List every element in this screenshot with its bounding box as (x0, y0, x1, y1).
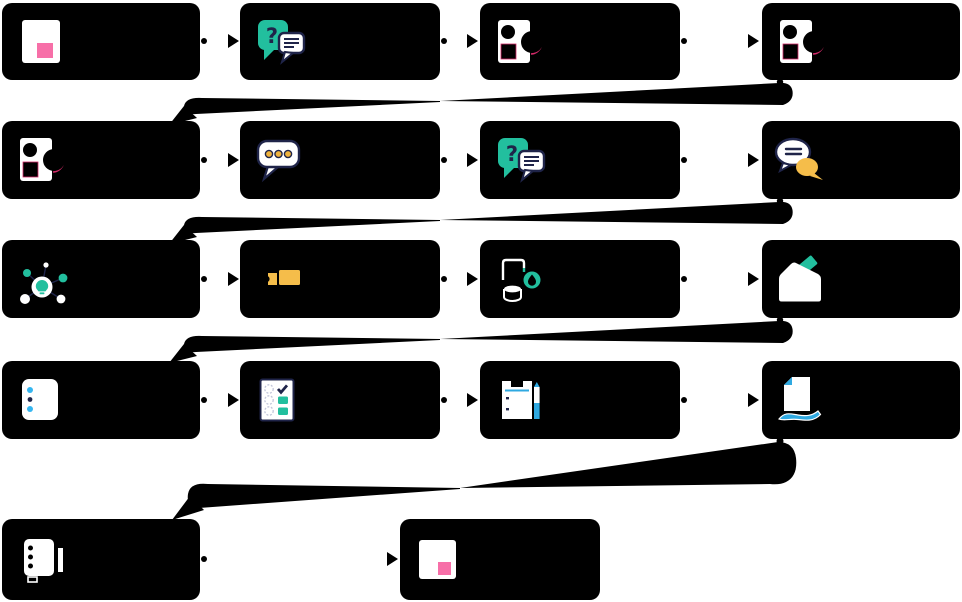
note-icon (416, 538, 460, 582)
flow-node-r2-s4 (762, 121, 960, 199)
flow-node-r1-s4 (762, 3, 960, 80)
contact-card-icon (778, 18, 828, 66)
row-wrap-arrow (0, 436, 962, 526)
connector-dot (681, 157, 687, 163)
connector-arrowhead (387, 552, 398, 566)
flow-node-r2-s2 (240, 121, 440, 199)
flow-node-r2-s3: ? (480, 121, 680, 199)
connector-arrowhead (467, 272, 478, 286)
row-wrap-arrow (0, 315, 962, 365)
connector-arrowhead (748, 393, 759, 407)
flow-node-r1-s3 (480, 3, 680, 80)
flow-node-r5-s2 (400, 519, 600, 600)
connector-dot (681, 38, 687, 44)
connector-arrowhead (228, 272, 239, 286)
flow-node-r2-s1 (2, 121, 200, 199)
connector-arrowhead (228, 34, 239, 48)
flow-node-r1-s1 (2, 3, 200, 80)
flow-node-r4-s3 (480, 361, 680, 439)
ballot-box-icon (776, 255, 826, 303)
objects-pin-icon (498, 253, 546, 305)
checklist-icon (258, 377, 296, 423)
connector-dot (201, 157, 207, 163)
list-icon (18, 376, 62, 424)
flow-node-r5-s1 (2, 519, 200, 600)
flow-node-r4-s2 (240, 361, 440, 439)
connector-dot (201, 397, 207, 403)
clipboard-pencil-icon (500, 378, 540, 422)
connector-dot (441, 157, 447, 163)
contact-card-icon (18, 136, 68, 184)
svg-text:?: ? (266, 24, 278, 48)
connector-arrowhead (748, 34, 759, 48)
flow-node-r4-s1 (2, 361, 200, 439)
flowchart-canvas: ? (0, 0, 962, 602)
document-hand-icon (776, 375, 822, 425)
flow-node-r3-s4 (762, 240, 960, 318)
ticket-icon (266, 268, 306, 290)
connector-arrowhead (228, 393, 239, 407)
connector-dot (201, 556, 207, 562)
notebook-icon (18, 535, 66, 585)
row-wrap-arrow (0, 196, 962, 246)
connector-arrowhead (748, 153, 759, 167)
flow-node-r1-s2: ? (240, 3, 440, 80)
flow-node-r4-s4 (762, 361, 960, 439)
flow-node-r3-s3 (480, 240, 680, 318)
connector-dot (441, 276, 447, 282)
connector-arrowhead (467, 34, 478, 48)
typing-bubble-icon (256, 137, 302, 183)
connector-arrowhead (748, 272, 759, 286)
row-wrap-arrow (0, 77, 962, 127)
connector-dot (441, 38, 447, 44)
svg-text:?: ? (506, 142, 518, 166)
question-chat-icon: ? (256, 18, 306, 66)
connector-arrowhead (467, 393, 478, 407)
connector-dot (441, 397, 447, 403)
connector-dot (681, 276, 687, 282)
chat-exchange-icon (774, 137, 826, 183)
flow-node-r3-s1 (2, 240, 200, 318)
connector-dot (681, 397, 687, 403)
idea-icon (14, 251, 70, 307)
note-icon (18, 18, 66, 66)
flow-node-r3-s2 (240, 240, 440, 318)
question-chat-icon: ? (496, 136, 546, 184)
connector-dot (201, 38, 207, 44)
connector-arrowhead (467, 153, 478, 167)
connector-arrowhead (228, 153, 239, 167)
connector-dot (201, 276, 207, 282)
contact-card-icon (496, 18, 546, 66)
